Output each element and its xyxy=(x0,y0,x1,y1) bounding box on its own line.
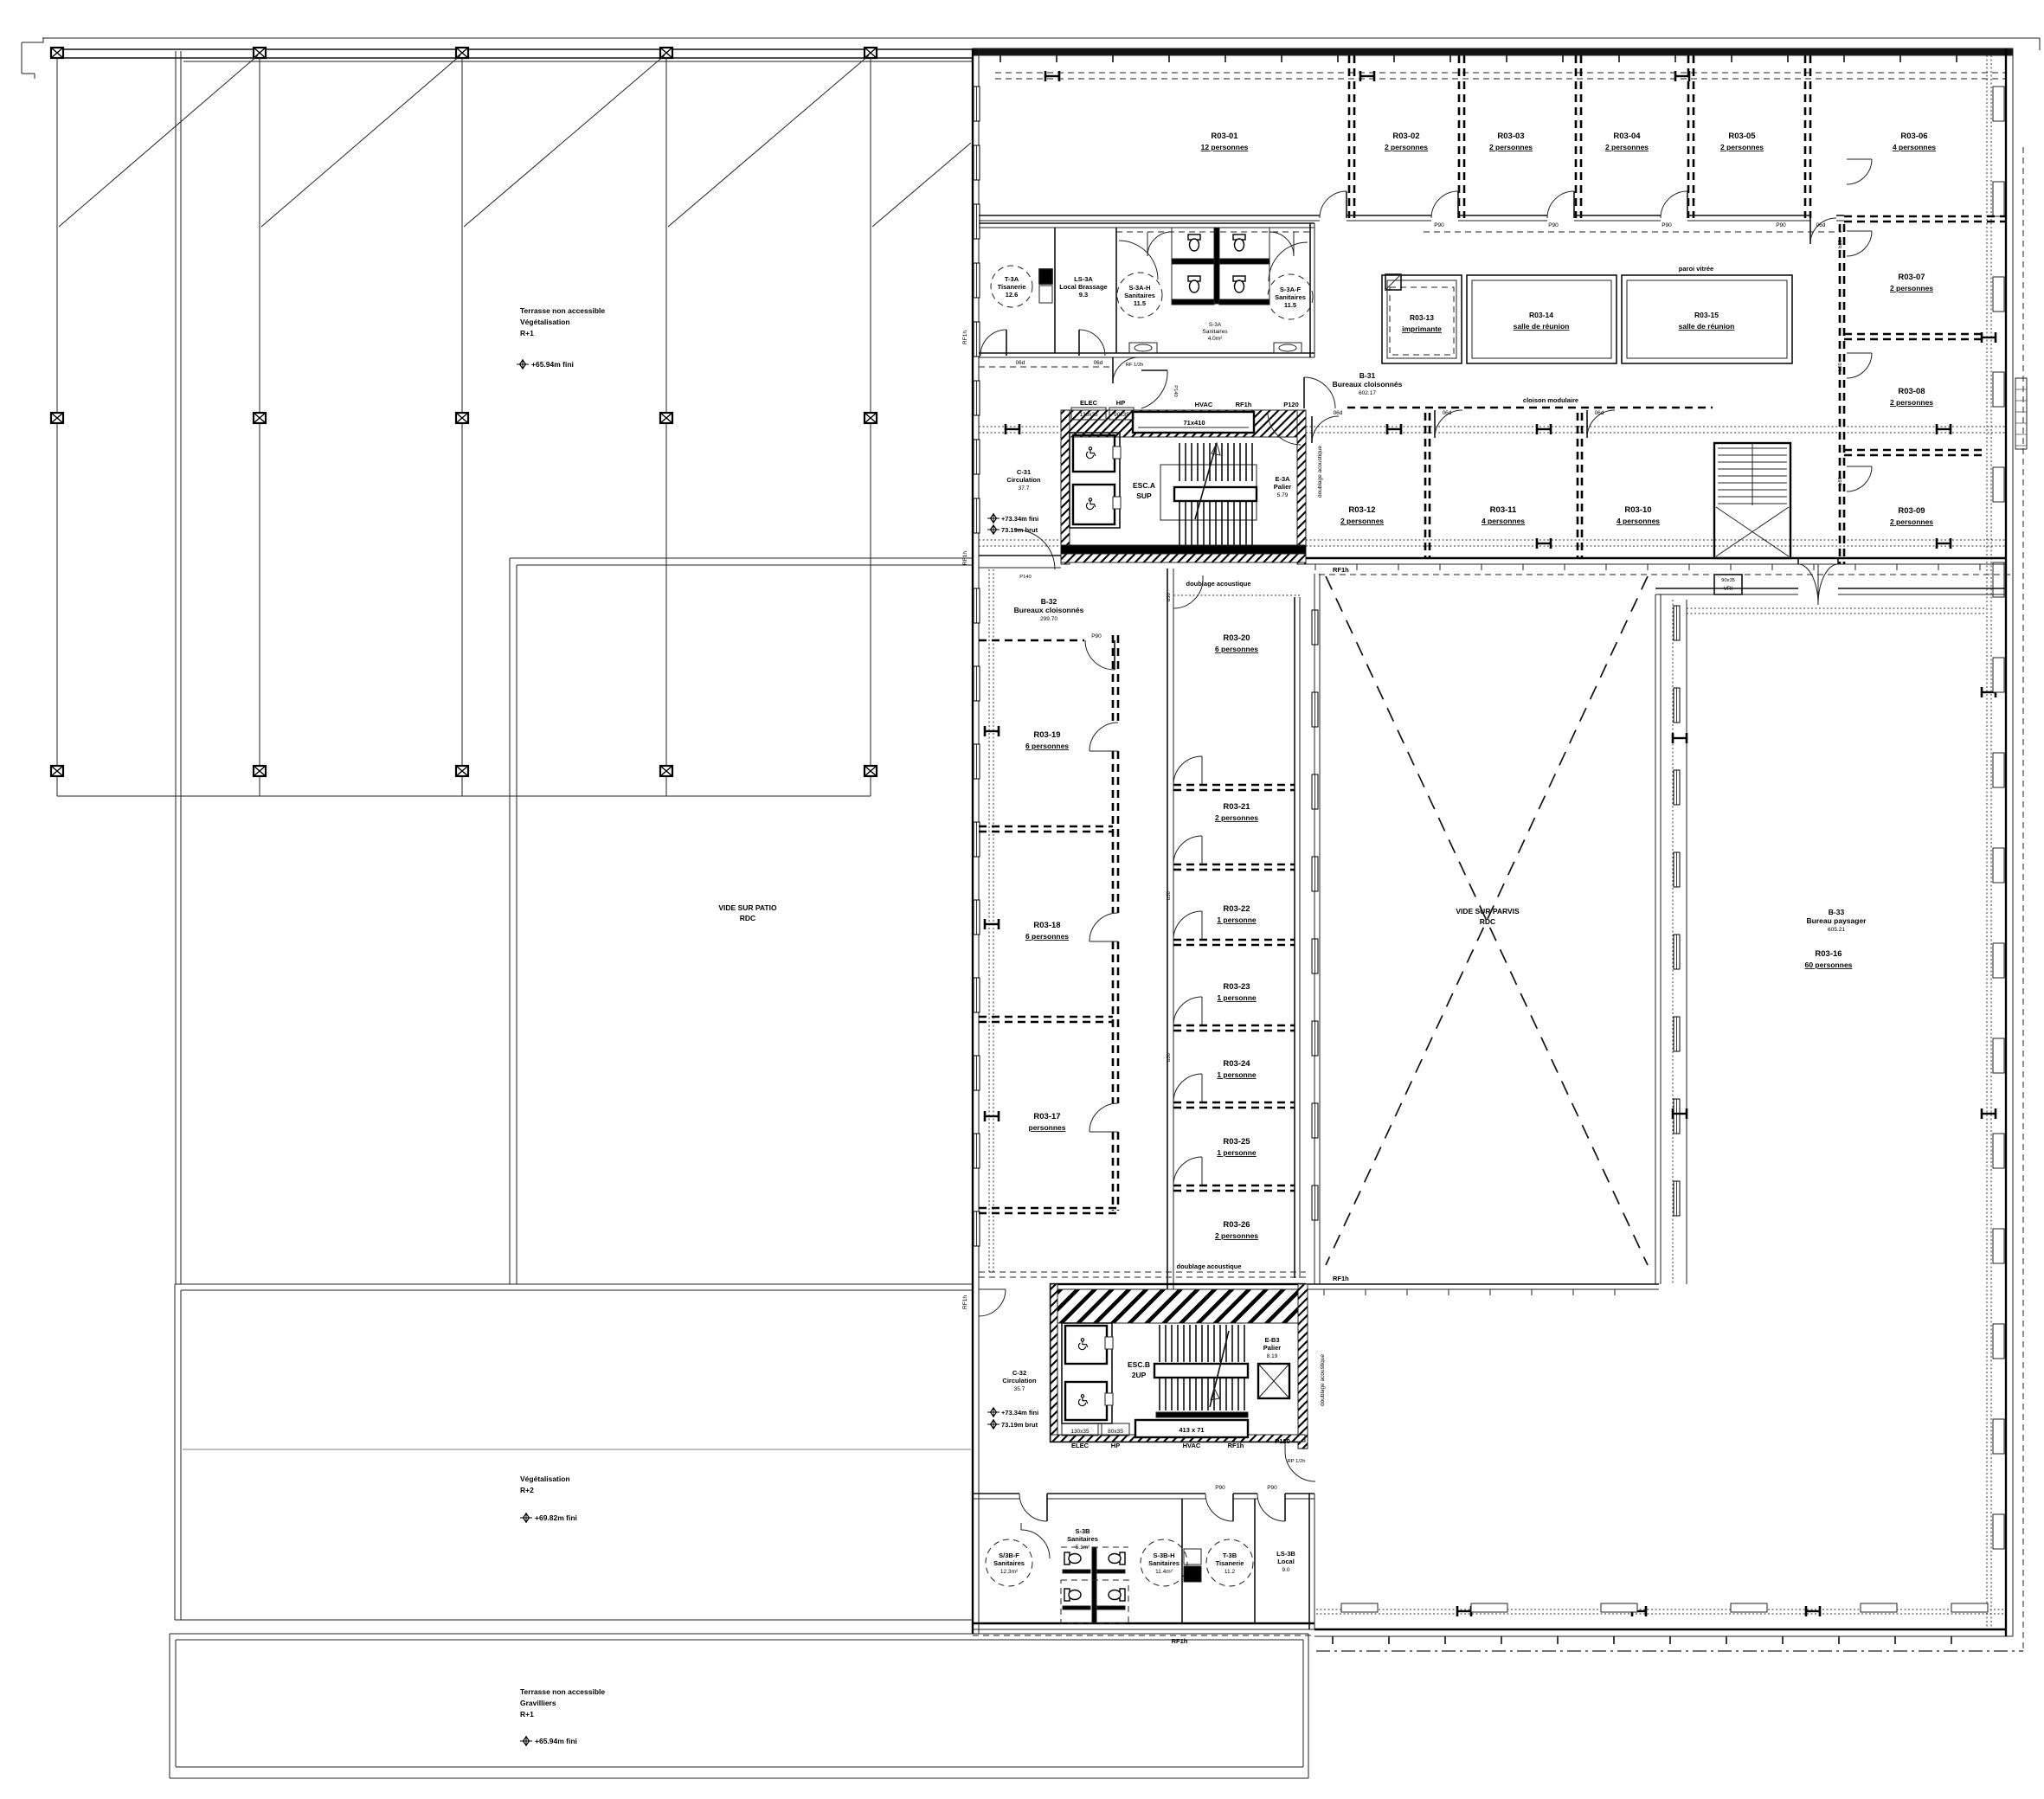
svg-text:2 personnes: 2 personnes xyxy=(1720,143,1764,151)
svg-text:1 personne: 1 personne xyxy=(1217,1148,1257,1157)
svg-text:90x35: 90x35 xyxy=(1114,412,1129,418)
svg-text:R03-02: R03-02 xyxy=(1392,132,1419,141)
svg-text:R03-14: R03-14 xyxy=(1529,311,1553,319)
svg-text:RF1h: RF1h xyxy=(1333,566,1349,574)
svg-text:P90: P90 xyxy=(1215,1485,1225,1491)
svg-text:602.17: 602.17 xyxy=(1359,390,1376,396)
svg-text:S-3A: S-3A xyxy=(1209,322,1222,328)
svg-text:b30: b30 xyxy=(1167,1053,1172,1062)
svg-text:+73.34m fini: +73.34m fini xyxy=(1001,1409,1038,1417)
svg-text:b80: b80 xyxy=(1838,477,1843,485)
svg-text:R03-03: R03-03 xyxy=(1497,132,1524,141)
svg-text:Local: Local xyxy=(1277,1558,1295,1565)
svg-text:11.2: 11.2 xyxy=(1224,1569,1236,1575)
svg-text:B-31: B-31 xyxy=(1359,371,1376,380)
svg-text:Gravilliers: Gravilliers xyxy=(520,1699,556,1707)
svg-text:E-B3: E-B3 xyxy=(1264,1336,1279,1344)
svg-text:5.79: 5.79 xyxy=(1277,492,1289,498)
svg-text:413 x 71: 413 x 71 xyxy=(1179,1426,1204,1434)
svg-text:P90: P90 xyxy=(1434,222,1444,228)
svg-text:Sanitaires: Sanitaires xyxy=(1203,329,1229,335)
svg-text:personnes: personnes xyxy=(1029,1123,1066,1132)
svg-text:VIDE SUR PATIO: VIDE SUR PATIO xyxy=(718,903,777,912)
svg-text:B-32: B-32 xyxy=(1041,597,1057,606)
svg-text:Palier: Palier xyxy=(1274,483,1292,491)
svg-text:doublage acoustique: doublage acoustique xyxy=(1317,446,1323,498)
svg-text:R03-18: R03-18 xyxy=(1033,921,1060,930)
svg-text:HP: HP xyxy=(1116,399,1125,407)
svg-text:R03-04: R03-04 xyxy=(1613,132,1641,141)
svg-text:4 personnes: 4 personnes xyxy=(1617,517,1660,525)
svg-text:P90: P90 xyxy=(1548,222,1559,228)
svg-text:06d: 06d xyxy=(1334,410,1343,416)
svg-text:2 personnes: 2 personnes xyxy=(1890,398,1933,407)
svg-text:Palier: Palier xyxy=(1263,1344,1282,1352)
svg-text:Terrasse non accessible: Terrasse non accessible xyxy=(520,306,605,315)
svg-text:Circulation: Circulation xyxy=(1002,1377,1037,1385)
svg-text:R03-01: R03-01 xyxy=(1211,132,1238,141)
svg-text:paroi vitrée: paroi vitrée xyxy=(1679,265,1713,273)
svg-text:R03-16: R03-16 xyxy=(1815,949,1842,959)
svg-text:LS-3A: LS-3A xyxy=(1074,275,1093,283)
svg-text:R03-21: R03-21 xyxy=(1223,802,1250,812)
svg-text:R03-17: R03-17 xyxy=(1033,1112,1060,1121)
svg-text:R03-05: R03-05 xyxy=(1728,132,1756,141)
svg-text:R+2: R+2 xyxy=(520,1486,534,1494)
svg-text:ESC.B: ESC.B xyxy=(1128,1360,1150,1369)
svg-text:R03-26: R03-26 xyxy=(1223,1220,1250,1230)
svg-text:Végétalisation: Végétalisation xyxy=(520,318,570,326)
svg-text:12.3m²: 12.3m² xyxy=(1000,1569,1019,1575)
svg-text:R03-08: R03-08 xyxy=(1898,387,1925,396)
svg-text:R03-09: R03-09 xyxy=(1898,506,1925,516)
svg-text:R03-22: R03-22 xyxy=(1223,904,1250,914)
svg-text:E-3A: E-3A xyxy=(1275,475,1290,483)
svg-text:S/3B-F: S/3B-F xyxy=(999,1552,1019,1559)
svg-text:R03-20: R03-20 xyxy=(1223,633,1250,643)
svg-text:1 personne: 1 personne xyxy=(1217,993,1257,1002)
svg-text:b80: b80 xyxy=(1838,363,1843,371)
svg-text:ELEC: ELEC xyxy=(1080,399,1098,407)
svg-text:6 personnes: 6 personnes xyxy=(1215,645,1258,653)
svg-text:C-31: C-31 xyxy=(1017,468,1031,476)
svg-text:2 personnes: 2 personnes xyxy=(1890,284,1933,292)
svg-text:73.19m brut: 73.19m brut xyxy=(1001,1421,1038,1429)
svg-text:4.0m²: 4.0m² xyxy=(1208,336,1223,342)
svg-text:T-3A: T-3A xyxy=(1005,275,1019,283)
svg-text:90x35: 90x35 xyxy=(1721,578,1735,583)
svg-text:Local Brassage: Local Brassage xyxy=(1059,283,1107,291)
svg-text:+69.82m fini: +69.82m fini xyxy=(535,1513,577,1522)
svg-text:11.5: 11.5 xyxy=(1134,299,1146,307)
svg-text:HP: HP xyxy=(1111,1442,1120,1449)
svg-text:6 personnes: 6 personnes xyxy=(1025,742,1069,750)
svg-text:06d: 06d xyxy=(1016,360,1025,366)
svg-text:cloison modulaire: cloison modulaire xyxy=(1523,396,1578,404)
svg-text:RF1h: RF1h xyxy=(1236,401,1252,408)
svg-text:doublage acoustique: doublage acoustique xyxy=(1320,1354,1326,1406)
svg-text:1 personne: 1 personne xyxy=(1217,916,1257,924)
svg-text:RF 1/2h: RF 1/2h xyxy=(1126,363,1144,368)
svg-text:R03-19: R03-19 xyxy=(1033,730,1060,740)
svg-text:HVAC: HVAC xyxy=(1195,401,1213,408)
svg-text:RF1h: RF1h xyxy=(962,331,968,344)
svg-text:SUP: SUP xyxy=(1136,492,1152,500)
svg-text:130x35: 130x35 xyxy=(1070,1429,1089,1435)
svg-text:LS-3B: LS-3B xyxy=(1276,1550,1295,1558)
svg-text:P120: P120 xyxy=(1275,1437,1290,1445)
svg-text:R03-07: R03-07 xyxy=(1898,273,1925,282)
svg-text:130x35: 130x35 xyxy=(1079,412,1098,418)
svg-text:Bureau paysager: Bureau paysager xyxy=(1807,916,1867,925)
svg-text:S-3A-H: S-3A-H xyxy=(1128,284,1150,292)
svg-text:b30: b30 xyxy=(1167,593,1172,601)
svg-text:2 personnes: 2 personnes xyxy=(1890,517,1933,526)
svg-text:RF1h: RF1h xyxy=(1333,1275,1349,1282)
svg-text:4 personnes: 4 personnes xyxy=(1893,143,1936,151)
svg-text:R03-23: R03-23 xyxy=(1223,982,1250,992)
svg-text:R03-13: R03-13 xyxy=(1410,313,1434,322)
svg-text:+73.34m fini: +73.34m fini xyxy=(1001,515,1038,523)
svg-text:1 personne: 1 personne xyxy=(1217,1070,1257,1079)
svg-text:Terrasse non accessible: Terrasse non accessible xyxy=(520,1687,605,1696)
svg-text:P90: P90 xyxy=(1662,222,1672,228)
svg-text:2 personnes: 2 personnes xyxy=(1215,813,1258,822)
svg-text:R03-10: R03-10 xyxy=(1624,505,1651,515)
svg-text:P140: P140 xyxy=(1019,575,1032,580)
svg-text:12.6: 12.6 xyxy=(1006,291,1019,299)
svg-text:Bureaux cloisonnés: Bureaux cloisonnés xyxy=(1014,606,1084,614)
svg-text:RF1h: RF1h xyxy=(962,551,968,565)
svg-text:P90: P90 xyxy=(1776,222,1786,228)
svg-text:R+1: R+1 xyxy=(520,1710,534,1719)
svg-text:06d: 06d xyxy=(1094,360,1103,366)
svg-text:Sanitaires: Sanitaires xyxy=(1275,293,1306,301)
svg-text:P120: P120 xyxy=(1283,401,1299,408)
svg-text:R+1: R+1 xyxy=(520,329,534,337)
svg-text:60 personnes: 60 personnes xyxy=(1805,961,1853,969)
svg-text:2 personnes: 2 personnes xyxy=(1385,143,1428,151)
svg-text:T-3B: T-3B xyxy=(1223,1552,1237,1559)
svg-text:S-3A-F: S-3A-F xyxy=(1280,286,1302,293)
svg-text:S-3B: S-3B xyxy=(1075,1527,1090,1535)
svg-text:RF1h: RF1h xyxy=(1228,1442,1244,1449)
svg-text:P90: P90 xyxy=(1091,633,1102,639)
svg-text:71x410: 71x410 xyxy=(1183,419,1205,427)
svg-text:b80: b80 xyxy=(1838,240,1843,248)
svg-text:doublage acoustique: doublage acoustique xyxy=(1186,580,1250,588)
svg-text:Sanitaires: Sanitaires xyxy=(1148,1559,1179,1567)
svg-text:RP 1/2h: RP 1/2h xyxy=(1288,1459,1306,1464)
svg-text:4 personnes: 4 personnes xyxy=(1482,517,1525,525)
svg-text:VIDE SUR PARVIS: VIDE SUR PARVIS xyxy=(1456,907,1520,916)
svg-text:RDC: RDC xyxy=(1480,917,1495,926)
svg-text:doublage acoustique: doublage acoustique xyxy=(1176,1263,1241,1270)
svg-text:P140: P140 xyxy=(1173,385,1178,397)
svg-text:06d: 06d xyxy=(1816,222,1826,228)
svg-text:R03-06: R03-06 xyxy=(1900,132,1927,141)
svg-text:R03-25: R03-25 xyxy=(1223,1137,1250,1147)
svg-text:Sanitaires: Sanitaires xyxy=(1067,1535,1098,1543)
svg-text:Tisanerie: Tisanerie xyxy=(1216,1559,1244,1567)
svg-text:RF1h: RF1h xyxy=(1172,1637,1188,1645)
svg-text:salle de réunion: salle de réunion xyxy=(1514,322,1570,331)
svg-text:ESC.A: ESC.A xyxy=(1133,481,1155,490)
svg-text:HVAC: HVAC xyxy=(1183,1442,1201,1449)
svg-text:80x35: 80x35 xyxy=(1108,1429,1123,1435)
svg-text:R03-11: R03-11 xyxy=(1490,505,1517,515)
svg-text:Végétalisation: Végétalisation xyxy=(520,1475,570,1483)
svg-text:B-33: B-33 xyxy=(1829,908,1845,916)
svg-text:P90: P90 xyxy=(1267,1485,1277,1491)
svg-text:8.19: 8.19 xyxy=(1267,1353,1278,1359)
svg-text:299.70: 299.70 xyxy=(1040,616,1057,622)
svg-text:RF1h: RF1h xyxy=(962,1295,968,1309)
svg-text:35.7: 35.7 xyxy=(1014,1386,1025,1392)
svg-text:ELEC: ELEC xyxy=(1071,1442,1089,1449)
svg-text:Sanitaires: Sanitaires xyxy=(993,1559,1025,1567)
svg-text:12 personnes: 12 personnes xyxy=(1201,143,1249,151)
svg-text:2 personnes: 2 personnes xyxy=(1340,517,1384,525)
svg-text:2 personnes: 2 personnes xyxy=(1215,1231,1258,1240)
svg-text:11.5: 11.5 xyxy=(1284,301,1296,309)
svg-text:S-3B-H: S-3B-H xyxy=(1153,1552,1174,1559)
svg-text:6 personnes: 6 personnes xyxy=(1025,932,1069,941)
svg-text:imprimante: imprimante xyxy=(1402,324,1442,333)
svg-text:Tisanerie: Tisanerie xyxy=(998,283,1026,291)
svg-text:R03-12: R03-12 xyxy=(1348,505,1375,515)
svg-text:salle de réunion: salle de réunion xyxy=(1679,322,1735,331)
svg-text:605.21: 605.21 xyxy=(1828,927,1845,933)
svg-text:37.7: 37.7 xyxy=(1019,485,1030,492)
svg-text:Bureaux cloisonnés: Bureaux cloisonnés xyxy=(1333,380,1403,389)
svg-text:+65.94m fini: +65.94m fini xyxy=(535,1737,577,1745)
svg-text:R03-15: R03-15 xyxy=(1694,311,1719,319)
svg-text:9.3: 9.3 xyxy=(1079,291,1088,299)
svg-text:2UP: 2UP xyxy=(1132,1371,1147,1379)
svg-text:+65.94m fini: +65.94m fini xyxy=(531,360,574,369)
svg-text:R03-24: R03-24 xyxy=(1223,1059,1250,1069)
svg-text:11.4m²: 11.4m² xyxy=(1155,1569,1173,1575)
svg-text:C-32: C-32 xyxy=(1012,1369,1026,1377)
svg-text:9.0: 9.0 xyxy=(1282,1567,1289,1573)
svg-text:Sanitaires: Sanitaires xyxy=(1124,292,1155,299)
svg-text:RDC: RDC xyxy=(740,914,755,922)
svg-text:2 personnes: 2 personnes xyxy=(1489,143,1533,151)
svg-text:Circulation: Circulation xyxy=(1006,476,1041,484)
svg-text:2 personnes: 2 personnes xyxy=(1605,143,1649,151)
svg-text:b30: b30 xyxy=(1167,891,1172,900)
